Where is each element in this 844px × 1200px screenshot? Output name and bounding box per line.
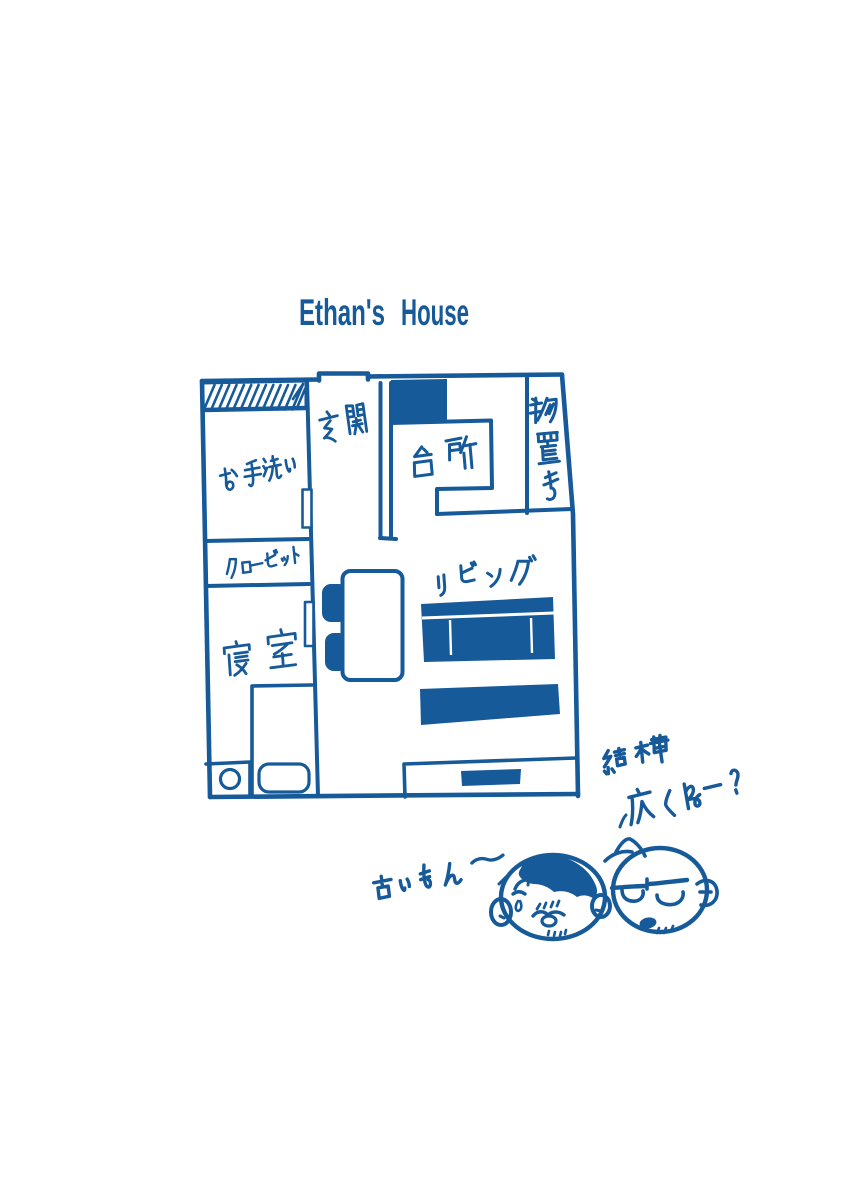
svg-text:House: House <box>401 292 469 333</box>
svg-text:Ethan's: Ethan's <box>299 292 385 333</box>
